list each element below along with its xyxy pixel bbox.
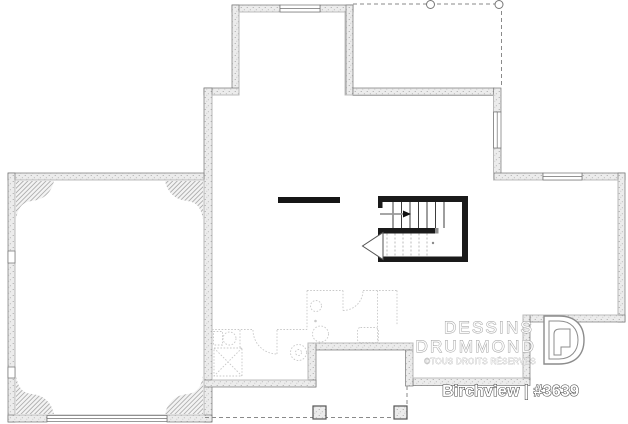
garage-wall-segment <box>8 173 15 422</box>
stair-direction-arrow <box>380 211 411 218</box>
stair-break-arrow <box>363 233 384 260</box>
brand-name-line2: DRUMMOND <box>415 337 536 356</box>
branding-block: DESSINS DRUMMOND ©TOUS DROITS RÉSERVÉS B… <box>415 316 584 400</box>
wall-segment <box>346 5 353 95</box>
suggested-layout <box>212 291 397 377</box>
square-post <box>394 406 407 419</box>
shower-stall <box>214 348 242 376</box>
wall-segment <box>204 380 316 387</box>
floor-drain <box>314 320 317 323</box>
wall-segment <box>494 173 543 180</box>
wall-segment <box>494 88 502 112</box>
water-heater <box>313 326 329 342</box>
sump-pit <box>291 345 307 361</box>
brand-rights: ©TOUS DROITS RÉSERVÉS <box>424 357 536 366</box>
wall-segment <box>618 173 625 322</box>
floor-plan-drawing: DESSINS DRUMMOND ©TOUS DROITS RÉSERVÉS B… <box>0 0 628 424</box>
window <box>494 112 502 148</box>
laundry-tub <box>311 301 322 312</box>
hatch-pad <box>16 181 54 219</box>
garage-door-opening <box>47 416 167 422</box>
door-swing <box>343 291 363 311</box>
square-post <box>313 406 326 419</box>
stair-walls <box>378 196 468 262</box>
door-swing <box>253 330 277 354</box>
plan-title: Birchview | #3639 <box>442 383 579 400</box>
floorplan-sheet: DESSINS DRUMMOND ©TOUS DROITS RÉSERVÉS B… <box>0 0 628 424</box>
wall-segment <box>232 5 239 95</box>
stair-treads-lower-dashed <box>387 234 427 257</box>
appliance <box>358 328 379 343</box>
stairwell <box>363 196 469 262</box>
bearing-wall <box>278 197 340 203</box>
garage-interior-outline <box>15 180 204 415</box>
wall-segment <box>204 88 212 422</box>
garage-corner-hatch-pads <box>16 181 203 414</box>
garage-wall-segment <box>8 173 204 180</box>
garage-wall-segment <box>167 415 212 422</box>
porch-outline-top <box>353 4 502 88</box>
drummond-d-logo <box>544 316 584 364</box>
hatch-pad <box>165 181 203 219</box>
wall-segment <box>353 88 494 96</box>
wall-segment <box>308 343 413 350</box>
stair-treads-upper <box>393 202 444 228</box>
brand-name-line1: DESSINS <box>444 318 534 337</box>
hatch-pad <box>165 376 203 414</box>
toilet <box>214 332 237 346</box>
hatch-pad <box>16 376 54 414</box>
window <box>543 173 582 180</box>
round-post <box>495 1 503 9</box>
porch-outline-bottom <box>205 386 407 418</box>
newel-dot <box>432 242 434 244</box>
round-post <box>427 1 435 9</box>
window <box>280 5 320 12</box>
garage-wall-segment <box>8 415 47 422</box>
stair-wall-end-cap <box>435 228 439 234</box>
sump-pit-inner <box>296 350 302 356</box>
